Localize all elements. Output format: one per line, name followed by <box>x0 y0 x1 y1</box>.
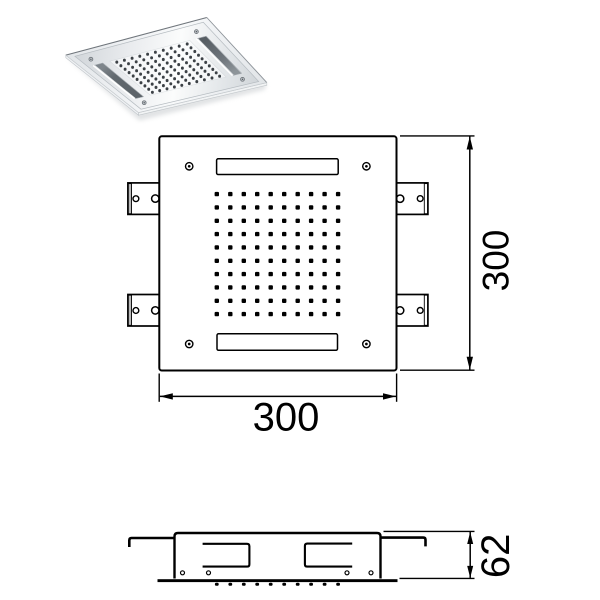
svg-text:300: 300 <box>253 396 320 440</box>
svg-text:300: 300 <box>476 230 517 292</box>
svg-text:62: 62 <box>474 534 518 579</box>
